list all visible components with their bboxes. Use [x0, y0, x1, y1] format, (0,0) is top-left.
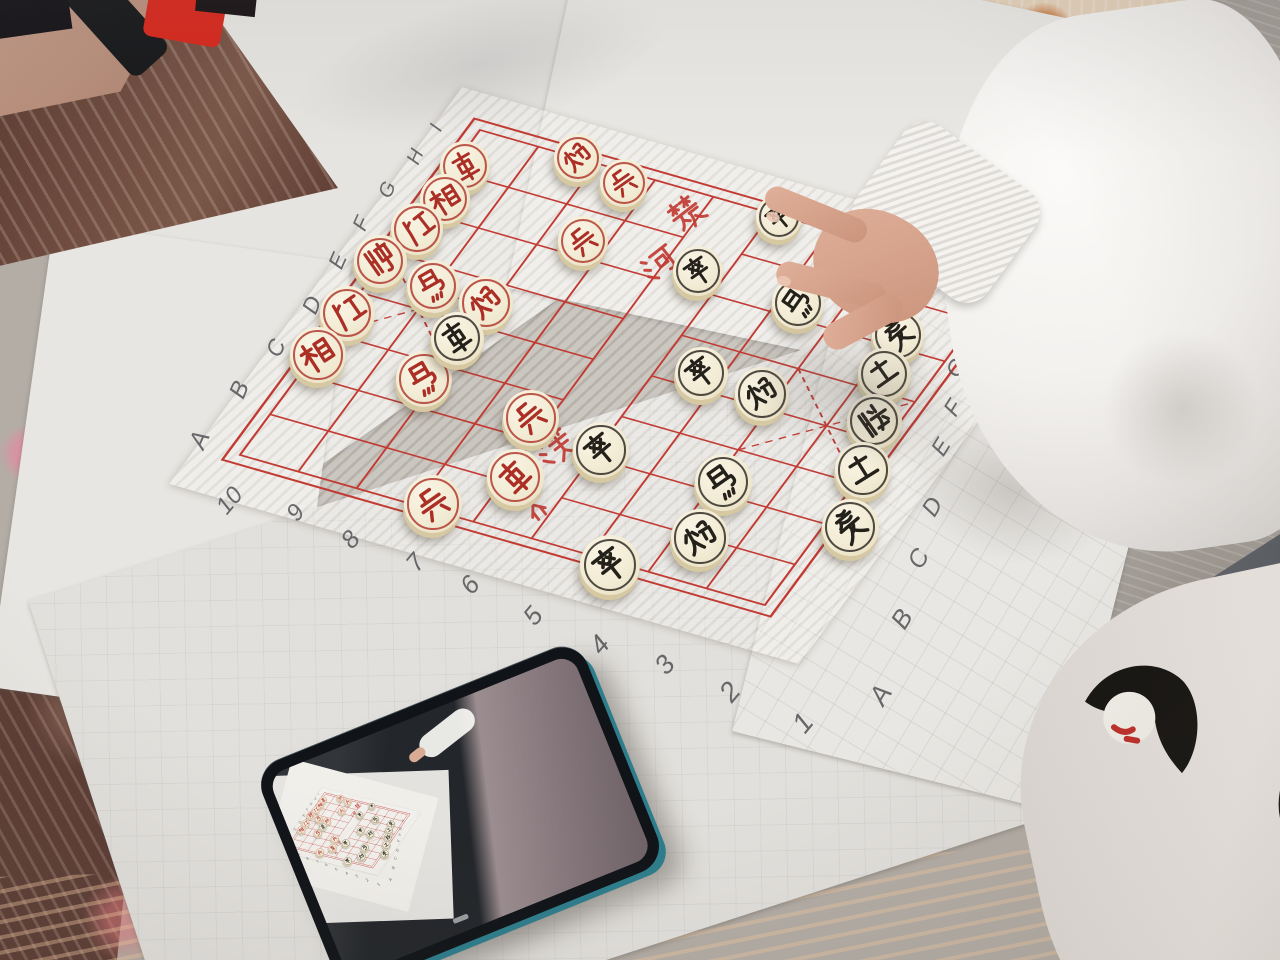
piece-black-chariot: [431, 312, 484, 365]
piece-red-cannon: [554, 134, 602, 182]
piece-red-elephant: [290, 327, 346, 383]
piece-red-chariot: [487, 449, 544, 506]
piece-red-horse: [407, 260, 460, 313]
piece-black-horse: [695, 454, 752, 511]
coord-number-10: 10: [286, 850, 292, 856]
piece-red-soldier: [404, 475, 462, 533]
piece-red-soldier: [600, 159, 648, 207]
piece-red-soldier: [503, 390, 559, 446]
photo-scene: IHGFEDCBAHGFEDCBA10987654321 IHGFED: [0, 0, 1280, 960]
piece-black-cannon: [671, 509, 729, 567]
piece-black-soldier: [580, 535, 640, 595]
river-text-楚: [664, 192, 710, 238]
piece-red-soldier: [558, 216, 608, 266]
piece-black-soldier: [573, 422, 629, 478]
piece-red-general: [354, 235, 407, 288]
